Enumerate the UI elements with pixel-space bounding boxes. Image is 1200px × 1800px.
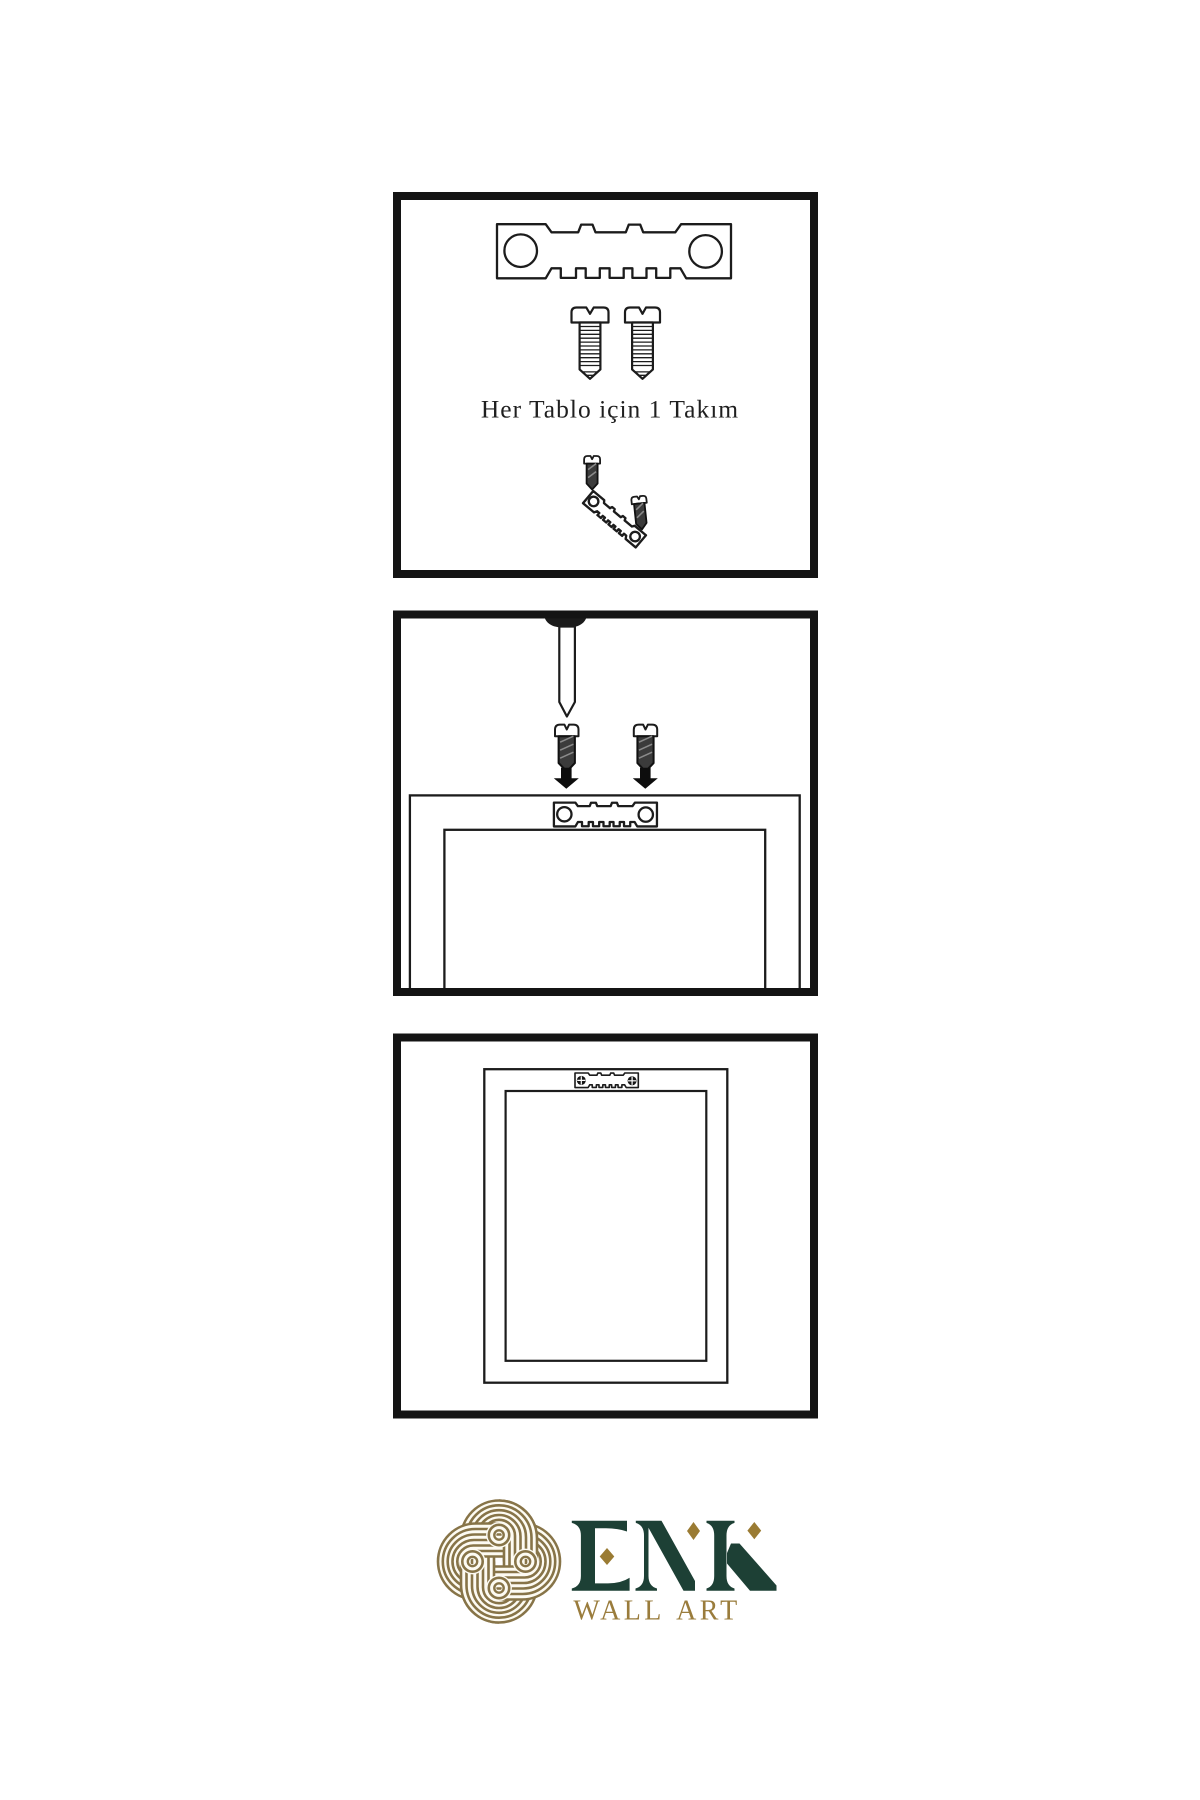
svg-text:WALL ART: WALL ART	[573, 1596, 740, 1627]
svg-text:Her Tablo için 1 Takım: Her Tablo için 1 Takım	[481, 395, 739, 424]
